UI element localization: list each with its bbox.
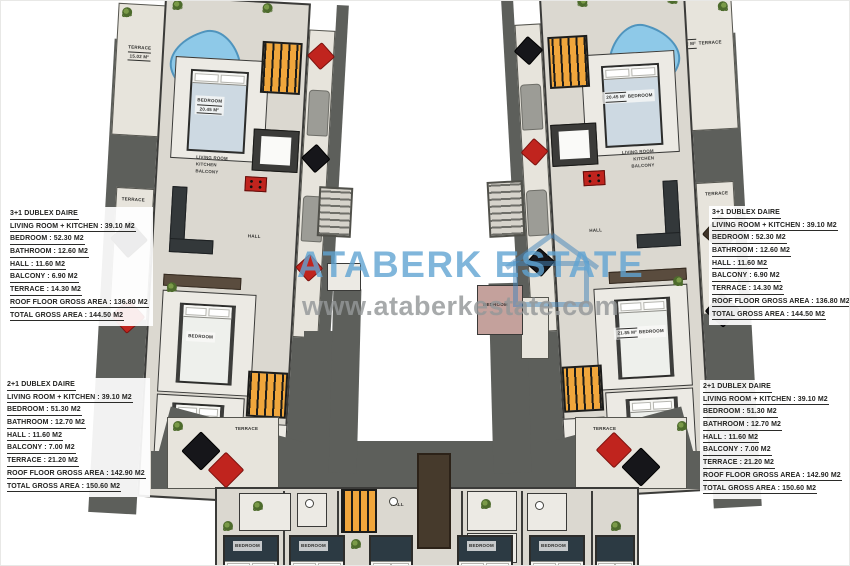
plant-icon: [253, 501, 263, 511]
bedroom-label: BEDROOM: [233, 541, 262, 551]
staircase-icon: [562, 365, 605, 413]
sun-lounger-icon: [307, 90, 331, 137]
spec-line: HALL : 11.60 M2: [7, 432, 63, 442]
spec-line: BALCONY : 6.90 M2: [712, 272, 781, 282]
terrace-label: TERRACE: [122, 195, 146, 204]
sofa-icon: [169, 238, 214, 254]
plant-icon: [173, 421, 183, 431]
spec-line: ROOF FLOOR GROSS AREA : 136.80 M2: [10, 299, 149, 309]
staircase-icon: [246, 371, 289, 419]
bedroom-label: BEDROOM: [467, 541, 496, 551]
bed-icon: [595, 535, 635, 566]
spec-line: ROOF FLOOR GROSS AREA : 142.90 M2: [703, 472, 842, 482]
spec-line: TERRACE : 14.30 M2: [10, 286, 82, 296]
spec-line: ROOF FLOOR GROSS AREA : 142.90 M2: [7, 470, 146, 480]
bed-icon: [601, 63, 663, 148]
sun-lounger-icon: [520, 84, 544, 131]
bathroom: [297, 493, 327, 527]
watermark-brand: ATABERK ESTATE: [297, 244, 644, 286]
spec-block-bottom-right: 2+1 DUBLEX DAIRE LIVING ROOM + KITCHEN :…: [700, 380, 846, 499]
spec-block-bottom-left: 2+1 DUBLEX DAIRE LIVING ROOM + KITCHEN :…: [4, 378, 150, 497]
spec-line: BEDROOM : 52.30 M2: [712, 234, 787, 244]
hall-label: HALL: [248, 232, 261, 240]
spec-title: 2+1 DUBLEX DAIRE: [7, 381, 76, 391]
spec-line: TOTAL GROSS AREA : 144.50 M2: [10, 312, 124, 322]
sun-lounger-icon: [526, 189, 550, 236]
sofa-icon: [170, 186, 188, 241]
wall: [591, 491, 593, 566]
wall: [521, 491, 523, 566]
spec-line: BEDROOM : 52.30 M2: [10, 235, 85, 245]
spec-line: HALL : 11.60 M2: [10, 261, 66, 271]
bedroom-label: BEDROOM 20.45 M²: [195, 95, 225, 116]
spec-block-top-right: 3+1 DUBLEX DAIRE LIVING ROOM + KITCHEN :…: [709, 206, 850, 325]
staircase-icon: [260, 41, 303, 95]
spec-line: TERRACE : 21.20 M2: [703, 459, 775, 469]
exterior-stair-icon: [317, 186, 354, 238]
wc-icon: [535, 501, 544, 510]
spec-line: BALCONY : 7.00 M2: [7, 444, 76, 454]
terrace-label: TERRACE: [235, 425, 258, 433]
bathroom: [527, 493, 567, 531]
spec-line: TERRACE : 21.20 M2: [7, 457, 79, 467]
spec-title: 3+1 DUBLEX DAIRE: [10, 210, 79, 220]
bedroom-label: BEDROOM: [186, 331, 215, 342]
spec-line: BALCONY : 7.00 M2: [703, 446, 772, 456]
elevator-icon: [550, 122, 598, 167]
elevator-shaft: [417, 453, 451, 549]
floor-plan-image: TERRACE 15.02 M² BEDROOM 20.45 M² LIVING…: [0, 0, 850, 566]
wc-icon: [305, 499, 314, 508]
elevator-icon: [252, 129, 300, 174]
spec-line: BATHROOM : 12.60 M2: [712, 247, 791, 257]
living-kitchen-balcony-labels: LIVING ROOM KITCHEN BALCONY: [195, 153, 228, 176]
spec-line: BATHROOM : 12.70 M2: [7, 419, 86, 429]
spec-line: TERRACE : 14.30 M2: [712, 285, 784, 295]
bottom-right-terrace: [575, 417, 687, 489]
plant-icon: [611, 521, 621, 531]
spec-line: BEDROOM : 51.30 M2: [703, 408, 778, 418]
living-kitchen-balcony-labels: LIVING ROOM KITCHEN BALCONY: [622, 147, 655, 170]
spec-line: LIVING ROOM + KITCHEN : 39.10 M2: [7, 394, 133, 404]
bedroom-label: BEDROOM: [299, 541, 328, 551]
spec-line: BATHROOM : 12.70 M2: [703, 421, 782, 431]
plant-icon: [481, 499, 491, 509]
spec-line: HALL : 11.60 M2: [712, 260, 768, 270]
terrace-label: TERRACE: [705, 189, 729, 198]
hall-label: HALL: [589, 226, 602, 234]
wc-icon: [389, 497, 398, 506]
plant-icon: [677, 421, 687, 431]
plant-icon: [351, 539, 361, 549]
terrace-label: TERRACE 15.02 M²: [127, 43, 151, 62]
bed-icon: [369, 535, 413, 566]
spec-line: TOTAL GROSS AREA : 150.60 M2: [703, 485, 817, 495]
spec-block-top-left: 3+1 DUBLEX DAIRE LIVING ROOM + KITCHEN :…: [7, 207, 153, 326]
exterior-stair-icon: [487, 180, 526, 238]
stove-icon: [244, 176, 267, 192]
watermark-url: www.ataberkestate.com: [302, 291, 619, 322]
stove-icon: [583, 170, 606, 186]
spec-line: LIVING ROOM + KITCHEN : 39.10 M2: [10, 223, 136, 233]
spec-title: 3+1 DUBLEX DAIRE: [712, 209, 781, 219]
spec-line: ROOF FLOOR GROSS AREA : 136.80 M2: [712, 298, 850, 308]
spec-line: TOTAL GROSS AREA : 144.50 M2: [712, 311, 826, 321]
bathroom: [239, 493, 291, 531]
spec-line: LIVING ROOM + KITCHEN : 39.10 M2: [703, 396, 829, 406]
sofa-icon: [662, 180, 680, 235]
bed-icon: [176, 303, 236, 386]
staircase-icon: [547, 35, 590, 89]
plant-icon: [223, 521, 233, 531]
spec-line: TOTAL GROSS AREA : 150.60 M2: [7, 483, 121, 493]
spec-line: HALL : 11.60 M2: [703, 434, 759, 444]
spec-line: BEDROOM : 51.30 M2: [7, 406, 82, 416]
bathroom: [467, 491, 517, 531]
spec-line: BATHROOM : 12.60 M2: [10, 248, 89, 258]
spec-line: BALCONY : 6.90 M2: [10, 273, 79, 283]
spec-line: LIVING ROOM + KITCHEN : 39.10 M2: [712, 222, 838, 232]
staircase-icon: [341, 489, 377, 533]
spec-title: 2+1 DUBLEX DAIRE: [703, 383, 772, 393]
bedroom-label: BEDROOM: [539, 541, 568, 551]
